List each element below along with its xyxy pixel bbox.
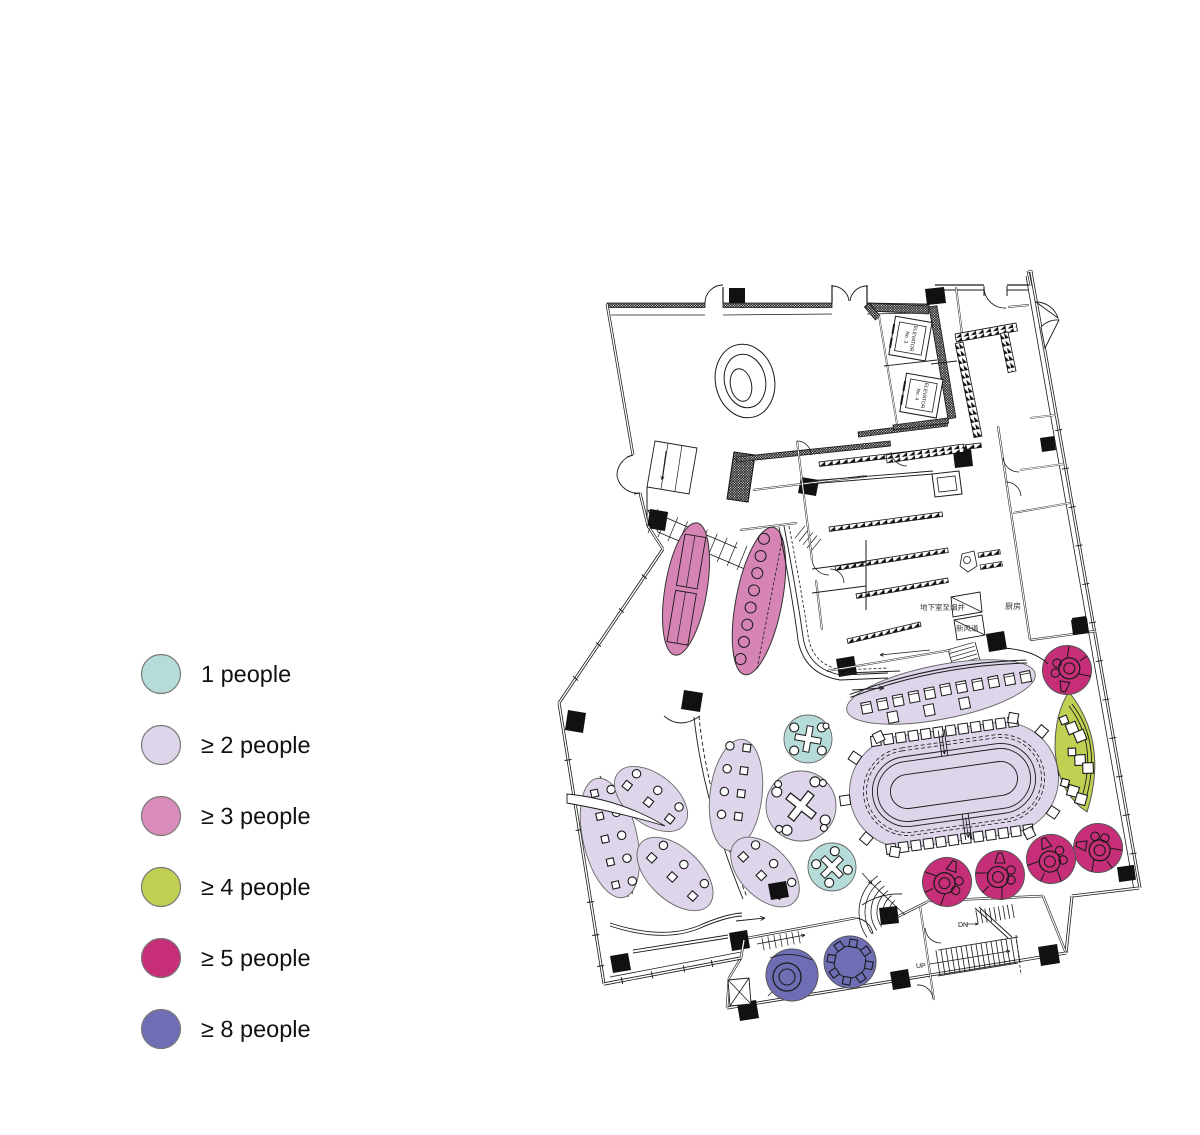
svg-text:厨房: 厨房 — [1005, 602, 1021, 611]
svg-text:UP: UP — [916, 963, 926, 970]
svg-text:1 people: 1 people — [201, 661, 291, 687]
svg-text:≥ 4 people: ≥ 4 people — [201, 874, 311, 900]
svg-text:新风道: 新风道 — [956, 624, 979, 633]
svg-text:≥ 5 people: ≥ 5 people — [201, 945, 311, 971]
svg-text:≥ 8 people: ≥ 8 people — [201, 1016, 311, 1042]
svg-text:≥ 3 people: ≥ 3 people — [201, 803, 311, 829]
svg-text:DN: DN — [958, 922, 968, 929]
svg-text:≥ 2 people: ≥ 2 people — [201, 732, 311, 758]
svg-text:地下室至烟井: 地下室至烟井 — [920, 603, 965, 612]
